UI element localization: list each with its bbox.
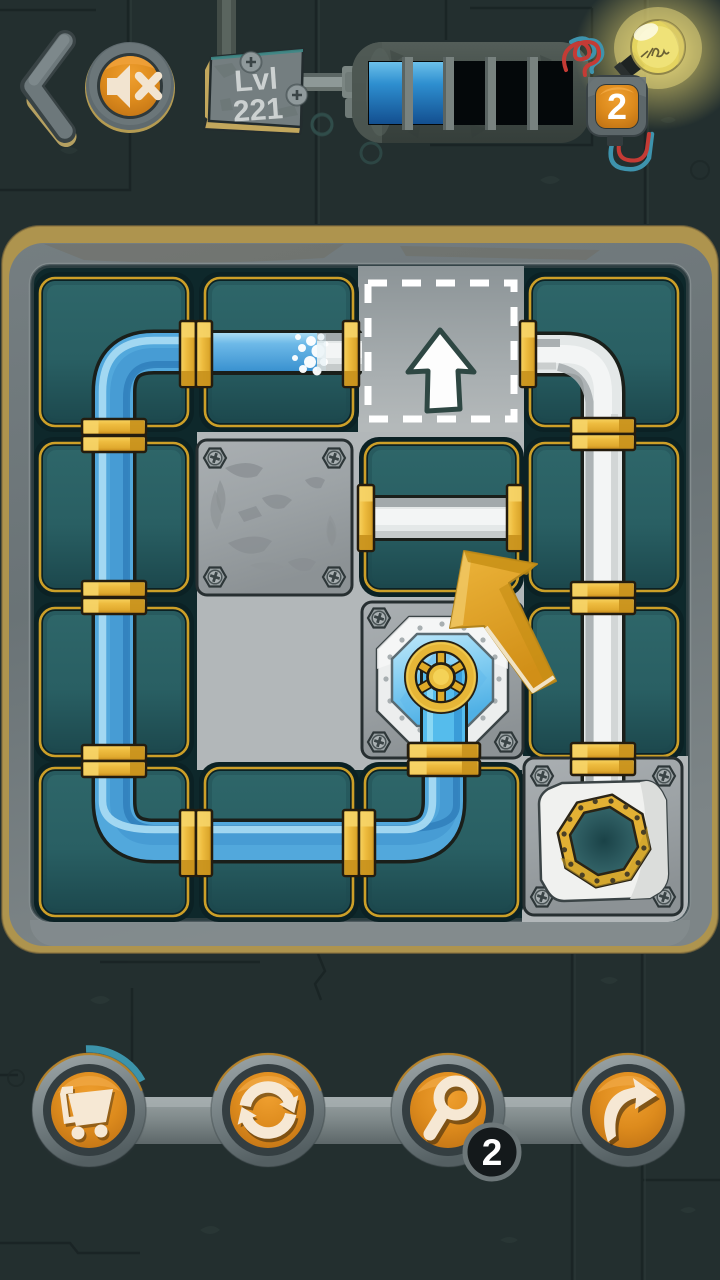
- svg-text:2: 2: [607, 86, 627, 127]
- svg-text:2: 2: [482, 1132, 503, 1173]
- svg-text:221: 221: [232, 92, 284, 128]
